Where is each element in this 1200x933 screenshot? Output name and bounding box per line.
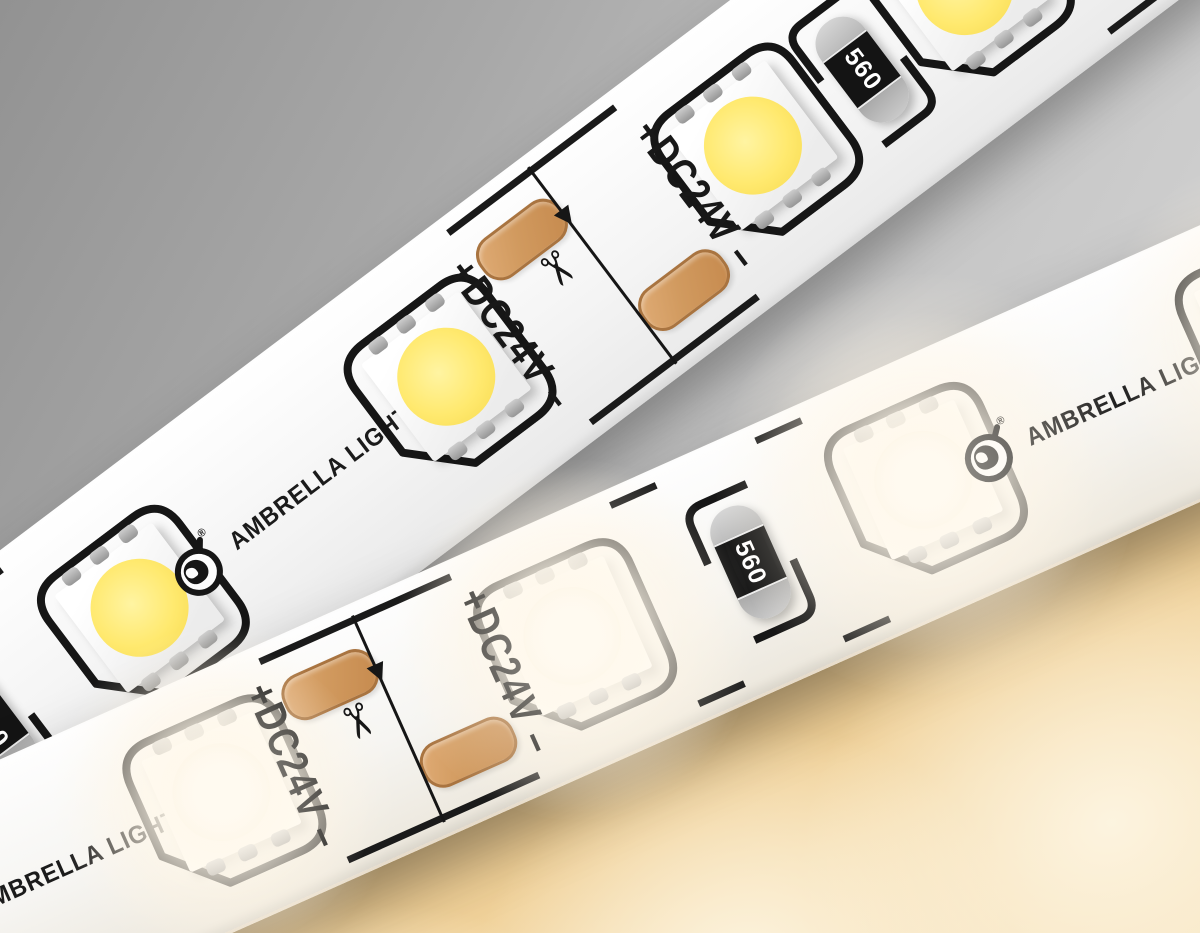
product-photo-scene: 560 ® AMBRELLA LIGHT — [0, 0, 1200, 933]
brand-name: AMBRELLA LIGHT — [1021, 336, 1200, 452]
edge-line — [1107, 0, 1200, 35]
resistor-value: 560 — [728, 536, 773, 589]
resistor-value: 560 — [837, 43, 887, 96]
